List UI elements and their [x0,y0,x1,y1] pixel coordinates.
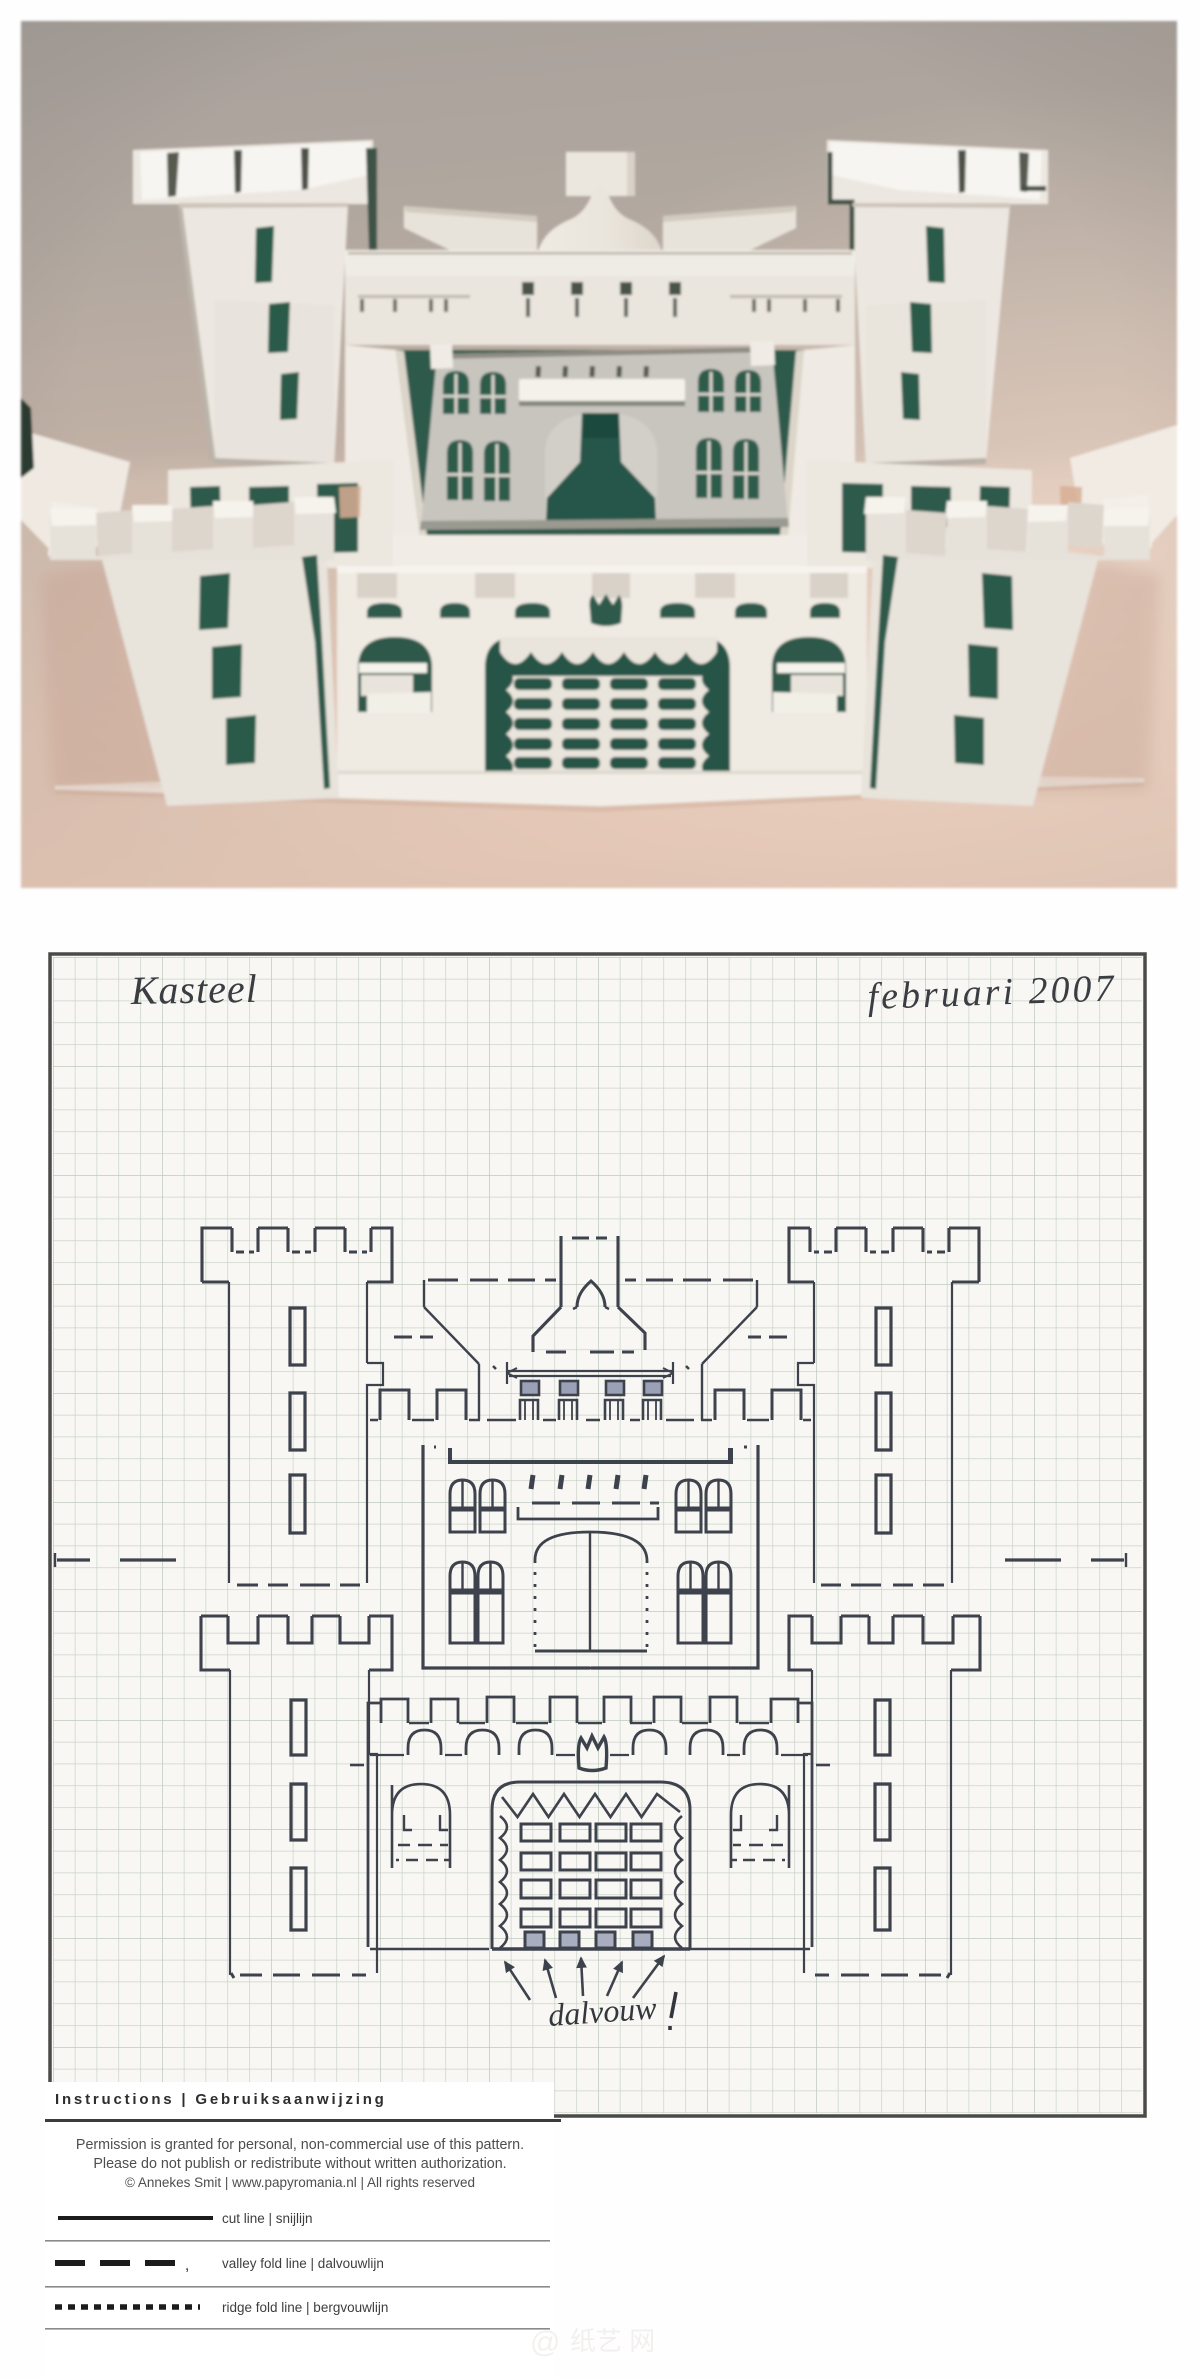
svg-text:valley fold line | dalvouwlijn: valley fold line | dalvouwlijn [222,2256,384,2271]
svg-text:Kasteel: Kasteel [129,966,258,1013]
svg-text:dalvouw: dalvouw [547,1989,658,2033]
svg-text:纸艺 网: 纸艺 网 [570,2326,655,2356]
svg-text:februari 2007: februari 2007 [867,967,1117,1018]
svg-text:Instructions | Gebruiksaanwijz: Instructions | Gebruiksaanwijzing [55,2091,387,2108]
svg-text:,: , [185,2257,189,2274]
svg-text:Permission is granted for pers: Permission is granted for personal, non-… [76,2137,524,2153]
svg-text:ridge fold line | bergvouwlijn: ridge fold line | bergvouwlijn [222,2300,388,2315]
svg-text:© Annekes Smit | www.papyroma: © Annekes Smit | www.papyromania.nl | Al… [125,2175,475,2190]
svg-text:@: @ [530,2326,560,2359]
svg-text:Please do not publish or redis: Please do not publish or redistribute wi… [93,2156,506,2172]
svg-text:cut line | snijlijn: cut line | snijlijn [222,2211,313,2226]
